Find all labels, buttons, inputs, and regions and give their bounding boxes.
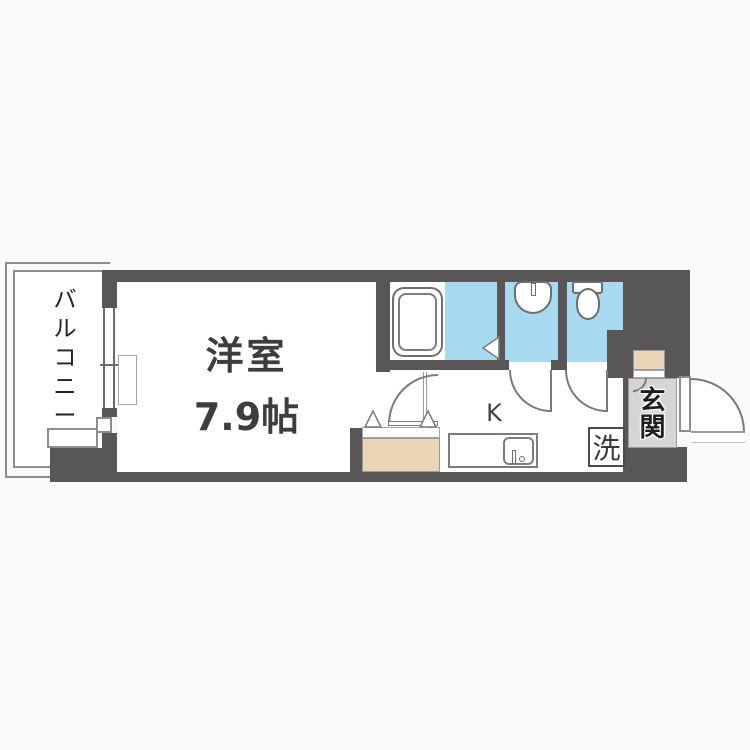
kitchen-label: K <box>470 399 518 427</box>
balcony-label: バ ル コ ニ ー <box>50 286 80 431</box>
main-room-name: 洋室 <box>117 325 376 380</box>
entrance-label: 玄 関 <box>634 388 671 442</box>
kitchen-faucet <box>512 450 516 464</box>
closet-fold-marker-right <box>420 411 436 427</box>
floorplan-page: { "floorplan": { "balcony": { "label": "… <box>0 0 750 750</box>
kitchen-faucet-knob <box>519 456 525 462</box>
main-room-title: 洋室 7.9帖 <box>117 325 376 441</box>
main-room-size: 7.9帖 <box>117 386 376 441</box>
bath-door-marker <box>483 337 499 359</box>
